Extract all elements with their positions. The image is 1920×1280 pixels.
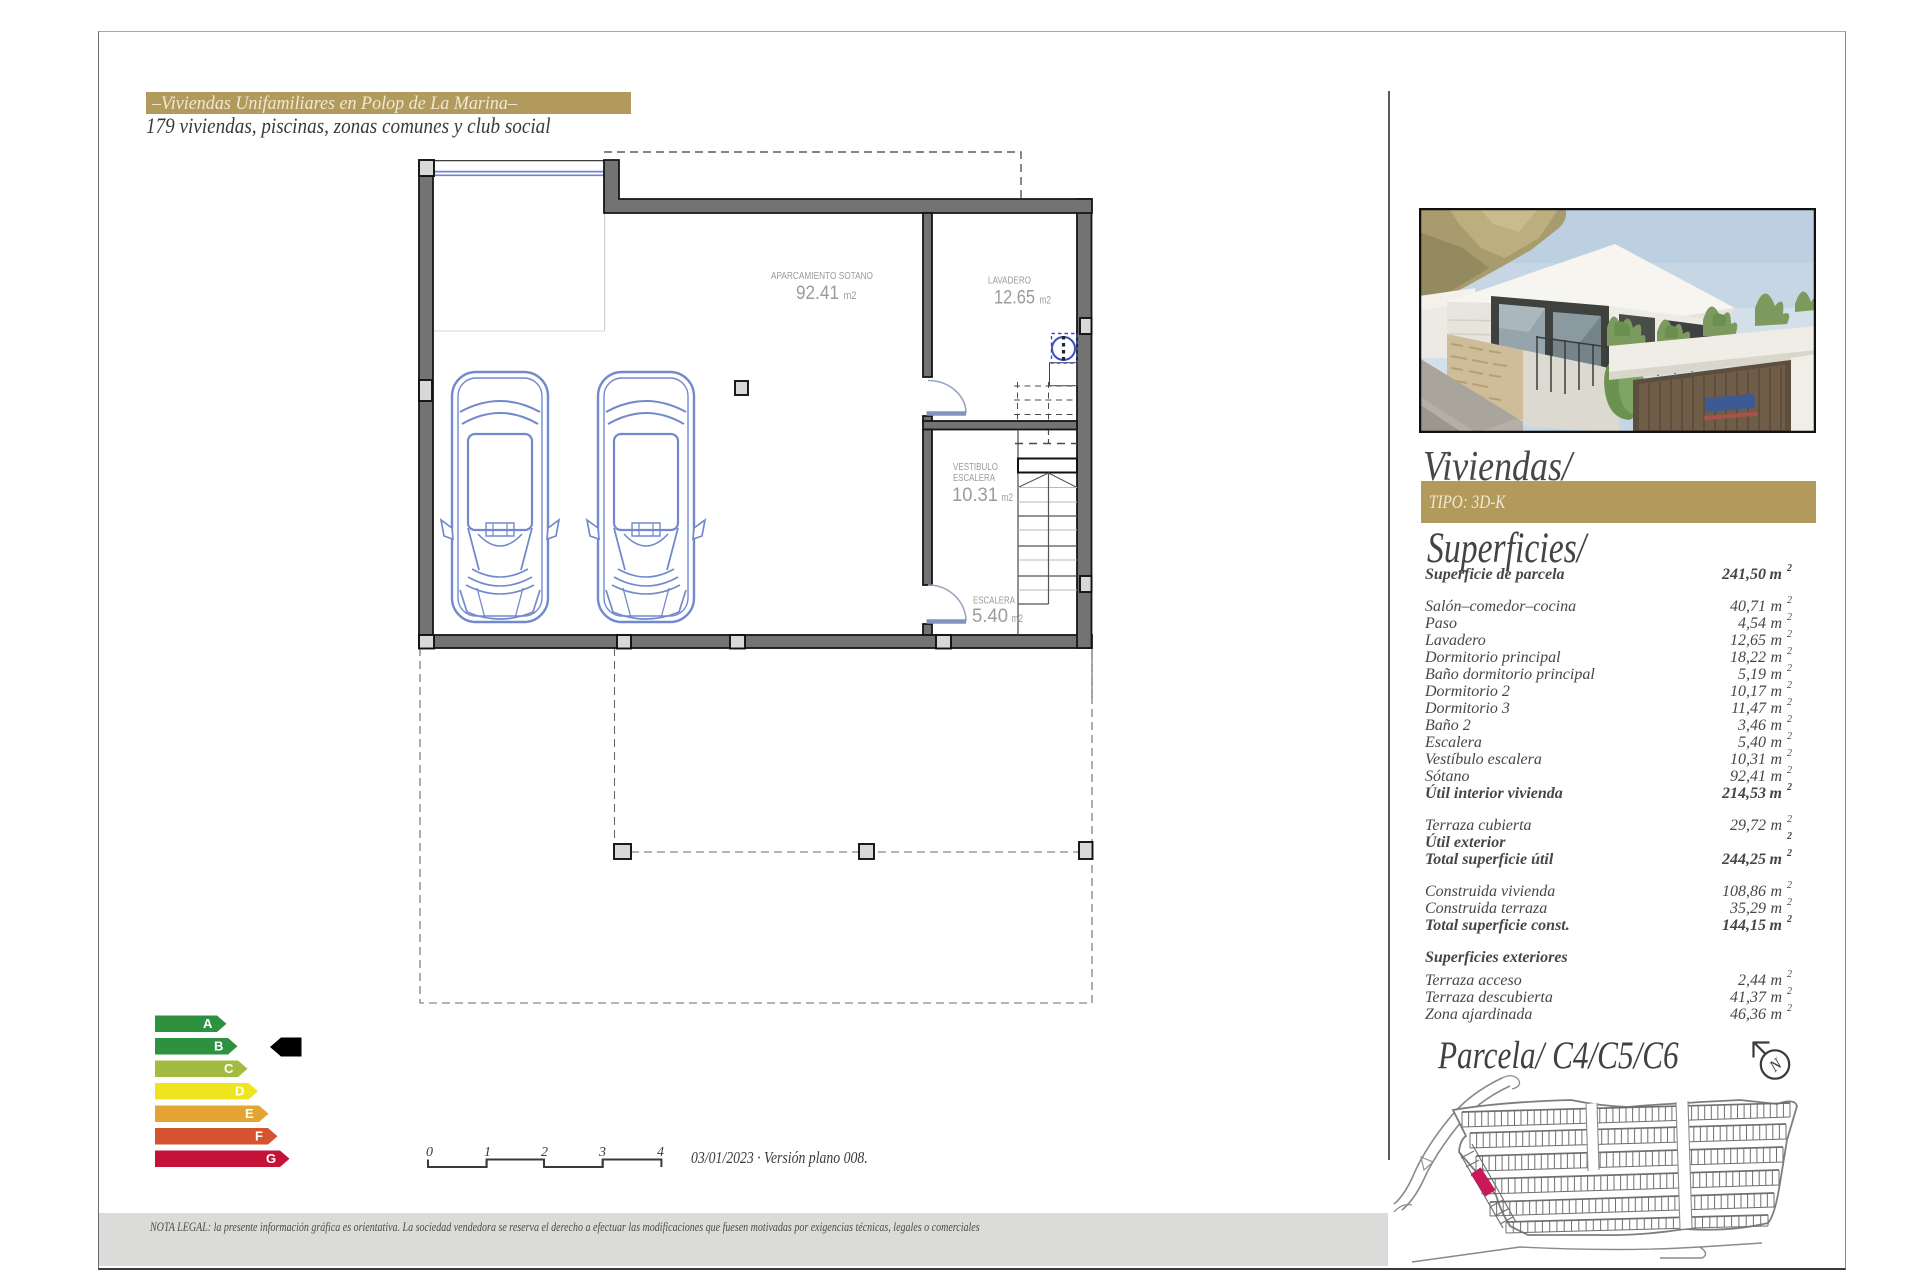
svg-text:F: F	[255, 1129, 263, 1144]
svg-text:4: 4	[657, 1145, 664, 1160]
svg-text:m2: m2	[1012, 613, 1024, 625]
svg-text:VESTIBULO: VESTIBULO	[953, 462, 998, 473]
svg-text:m2: m2	[1040, 295, 1052, 307]
svg-text:0: 0	[426, 1145, 433, 1160]
svg-text:APARCAMIENTO SOTANO: APARCAMIENTO SOTANO	[771, 271, 873, 282]
svg-text:C: C	[224, 1061, 234, 1076]
svg-text:D: D	[235, 1084, 244, 1099]
svg-text:G: G	[266, 1151, 276, 1166]
svg-text:92.41: 92.41	[796, 283, 839, 304]
svg-text:10.31: 10.31	[952, 485, 998, 506]
svg-text:5.40: 5.40	[972, 606, 1008, 627]
svg-text:m2: m2	[844, 290, 857, 302]
svg-text:B: B	[214, 1039, 223, 1054]
svg-text:12.65: 12.65	[994, 288, 1035, 309]
svg-text:LAVADERO: LAVADERO	[988, 276, 1031, 287]
svg-text:3: 3	[598, 1145, 606, 1160]
svg-text:m2: m2	[1002, 492, 1014, 504]
svg-text:ESCALERA: ESCALERA	[973, 596, 1015, 607]
svg-text:N: N	[1766, 1055, 1787, 1076]
svg-text:A: A	[203, 1016, 213, 1031]
svg-text:1: 1	[484, 1145, 491, 1160]
svg-text:E: E	[245, 1106, 254, 1121]
svg-text:2: 2	[541, 1145, 548, 1160]
svg-text:ESCALERA: ESCALERA	[953, 473, 995, 484]
